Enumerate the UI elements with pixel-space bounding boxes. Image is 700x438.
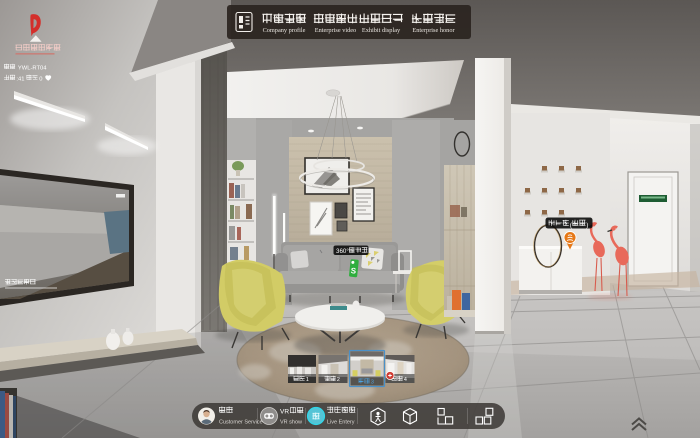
svg-text:Exhibit display: Exhibit display: [362, 27, 401, 34]
svg-text:VR show: VR show: [280, 420, 302, 426]
svg-text:YWL-RT04: YWL-RT04: [18, 65, 47, 71]
svg-text:3: 3: [371, 380, 374, 386]
svg-text:): ): [586, 222, 588, 229]
svg-text:VR: VR: [280, 409, 289, 416]
svg-text:2: 2: [337, 377, 340, 383]
svg-text:4: 4: [404, 377, 407, 383]
svg-text:Customer Service: Customer Service: [219, 420, 263, 426]
svg-text:Live Entery: Live Entery: [327, 420, 355, 426]
svg-text::41: :41: [16, 76, 24, 82]
svg-text:360°: 360°: [336, 248, 349, 255]
svg-text:1: 1: [306, 377, 309, 383]
svg-text:Company profile: Company profile: [263, 27, 306, 34]
svg-text:0: 0: [39, 76, 42, 82]
svg-text:Enterprise video: Enterprise video: [315, 27, 356, 34]
svg-text:Enterprise honor: Enterprise honor: [412, 27, 455, 34]
